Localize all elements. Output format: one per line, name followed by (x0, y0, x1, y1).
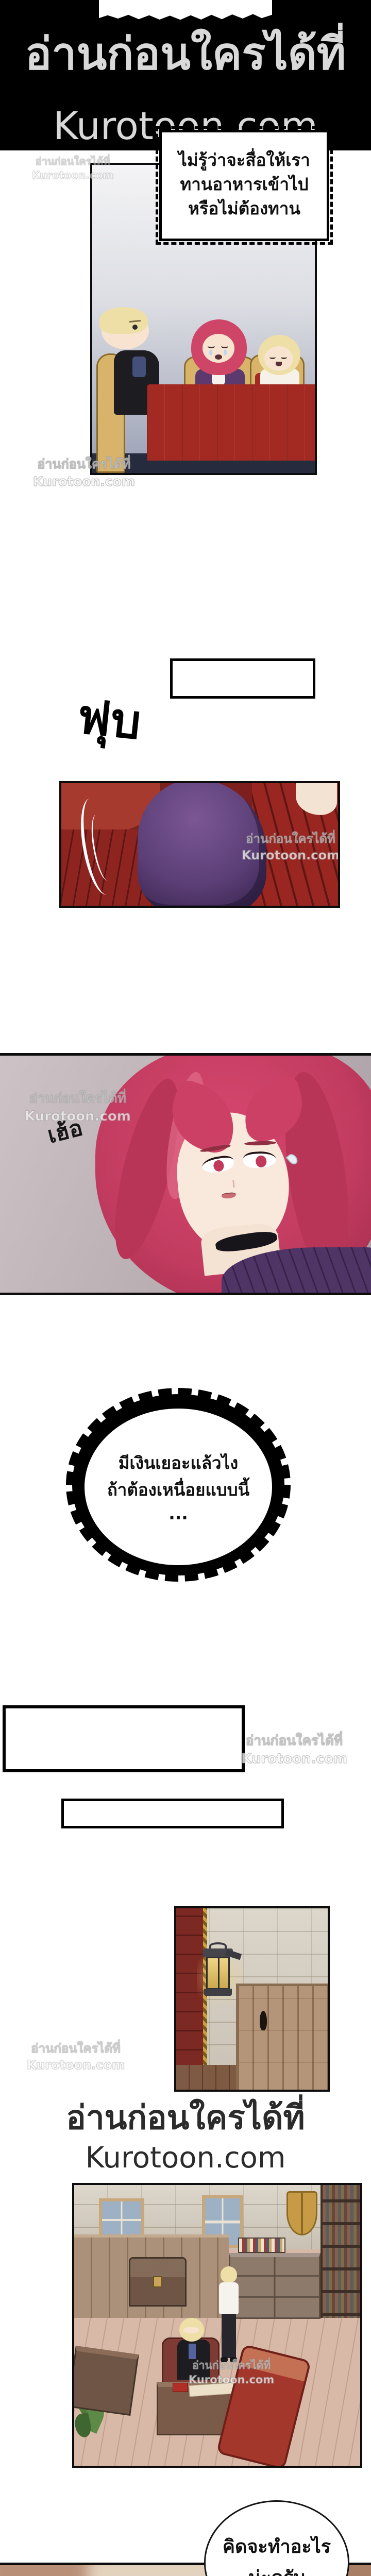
book-row (238, 2238, 285, 2253)
wall-ornament (286, 2191, 317, 2235)
promo-line2: Kurotoon.com (0, 2144, 371, 2173)
promo-text: อ่านก่อนใครได้ที่ Kurotoon.com (0, 2093, 371, 2173)
site-watermark: อ่านก่อนใครได้ที่Kurotoon.com (32, 155, 113, 182)
bubble-line: หรือไม่ต้องทาน (162, 196, 327, 221)
speech-box-empty-3 (61, 1799, 284, 1828)
chest (129, 2257, 187, 2307)
speech-box-empty-2 (3, 1705, 245, 1772)
keyhole (260, 2011, 267, 2030)
panel-door-lantern (174, 1906, 330, 2092)
wooden-door (236, 1984, 330, 2092)
mother-figure (189, 319, 251, 394)
thought-line: ถ้าต้องเหนื่อยแบบนี้ (107, 1477, 249, 1503)
site-watermark: อ่านก่อนใครได้ที่Kurotoon.com (33, 455, 135, 490)
site-watermark: อ่านก่อนใครได้ที่Kurotoon.com (189, 2358, 274, 2387)
site-watermark: อ่านก่อนใครได้ที่Kurotoon.com (25, 1090, 131, 1126)
thought-line: มีเงินเยอะแล้วไง (119, 1450, 239, 1477)
site-watermark: อ่านก่อนใครได้ที่Kurotoon.com (242, 831, 340, 864)
speech-bubble-feed: ไม่รู้ว่าจะสื่อให้เรา ทานอาหารเข้าไป หรื… (159, 130, 329, 241)
banner-title: อ่านก่อนใครได้ที่ (0, 30, 371, 79)
bubble-line: ทานอาหารเข้าไป (162, 172, 327, 196)
dining-table (147, 384, 317, 461)
bookshelf (321, 2185, 362, 2335)
bubble-line: ไม่รู้ว่าจะสื่อให้เรา (162, 148, 327, 172)
site-watermark: อ่านก่อนใครได้ที่Kurotoon.com (27, 2040, 125, 2074)
speech-box-empty-1 (170, 658, 315, 699)
cabinet-row (229, 2253, 321, 2319)
thought-line: ... (168, 1503, 188, 1524)
promo-line1: อ่านก่อนใครได้ที่ (0, 2093, 371, 2144)
side-desk (72, 2346, 139, 2416)
sfx-flop: ฟุบ (75, 688, 144, 752)
panel-mother-face: เฮ้อ อ่านก่อนใครได้ที่Kurotoon.com (0, 1053, 371, 1295)
thought-bubble: มีเงินเยอะแล้วไง ถ้าต้องเหนื่อยแบบนี้ ..… (72, 1394, 284, 1575)
panel-office: อ่านก่อนใครได้ที่Kurotoon.com (72, 2183, 362, 2468)
webtoon-page: อ่านก่อนใครได้ที่ Kurotoon.com (0, 0, 371, 2576)
site-watermark: อ่านก่อนใครได้ที่Kurotoon.com (241, 1732, 347, 1768)
panel-bed-closeup: อ่านก่อนใครได้ที่Kurotoon.com (59, 781, 340, 908)
standing-boy-figure (217, 2266, 240, 2369)
speech-bubble-question: คิดจะทำอะไร น่ะครับ (204, 2500, 349, 2576)
